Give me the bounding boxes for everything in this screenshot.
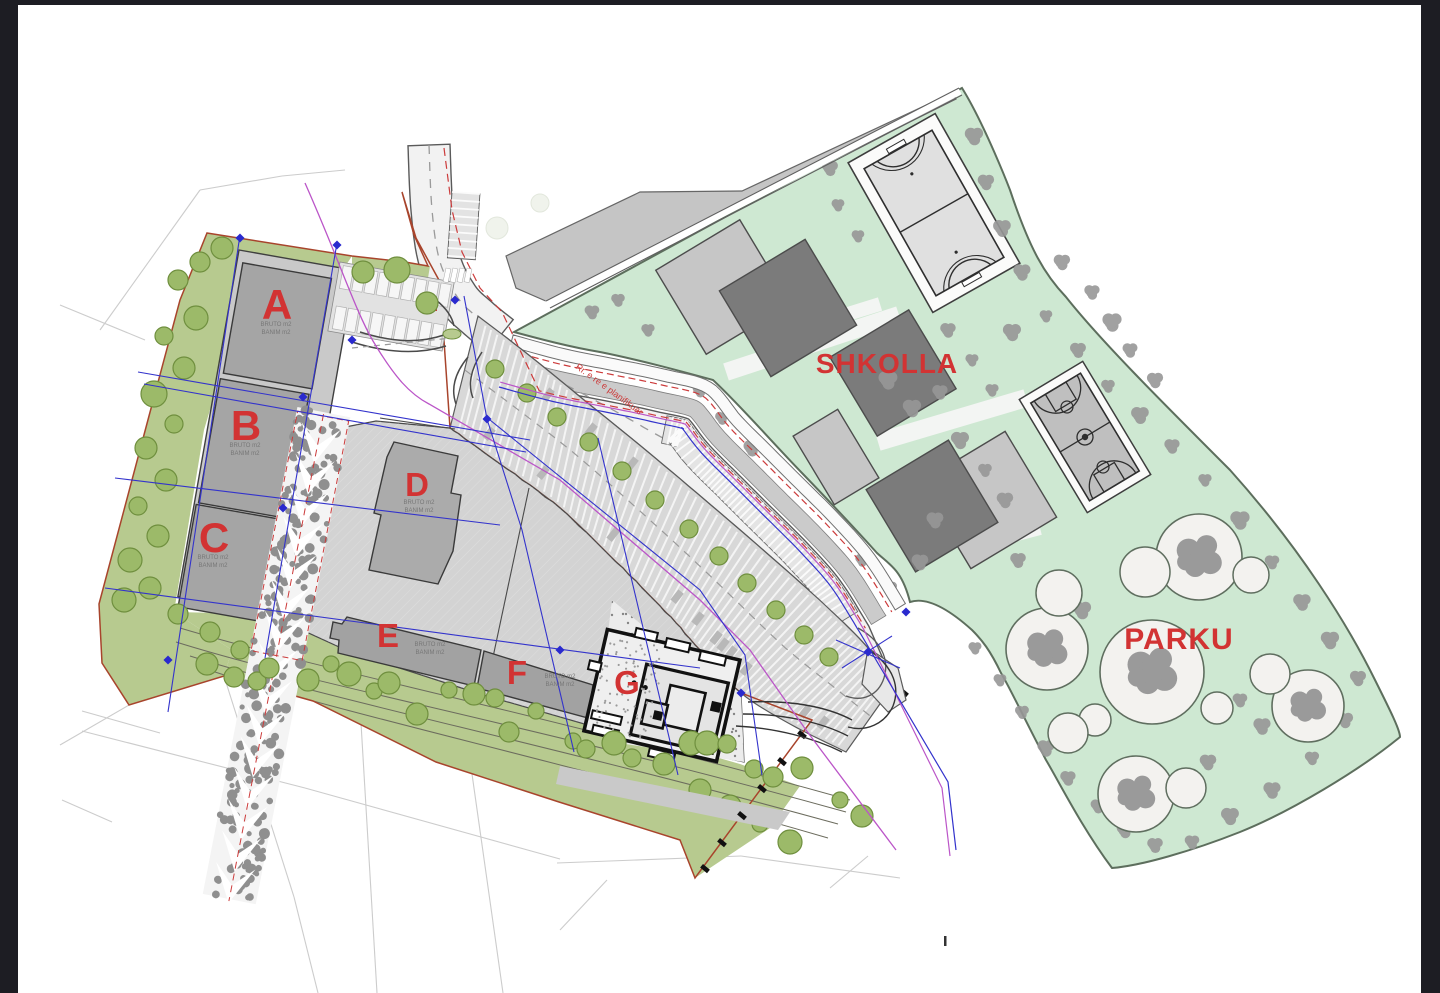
svg-text:F: F xyxy=(507,654,527,691)
svg-text:G: G xyxy=(614,664,640,701)
svg-text:E: E xyxy=(377,617,399,654)
svg-text:BRUTO m2: BRUTO m2 xyxy=(261,322,293,328)
svg-text:BANIM m2: BANIM m2 xyxy=(261,330,291,336)
svg-text:BRUTO m2: BRUTO m2 xyxy=(404,500,436,506)
svg-text:BANIM m2: BANIM m2 xyxy=(415,650,445,656)
svg-text:PARKU: PARKU xyxy=(1124,623,1233,656)
svg-text:SHKOLLA: SHKOLLA xyxy=(816,348,958,379)
svg-text:A: A xyxy=(262,281,292,328)
svg-text:BRUTO m2: BRUTO m2 xyxy=(198,555,230,561)
svg-text:D: D xyxy=(405,466,429,503)
svg-text:BANIM m2: BANIM m2 xyxy=(545,682,575,688)
svg-text:BRUTO m2: BRUTO m2 xyxy=(230,443,262,449)
svg-text:BRUTO m2: BRUTO m2 xyxy=(545,674,577,680)
svg-text:BANIM m2: BANIM m2 xyxy=(230,451,260,457)
svg-text:BANIM m2: BANIM m2 xyxy=(198,563,228,569)
svg-text:BRUTO m2: BRUTO m2 xyxy=(415,642,447,648)
svg-text:BANIM m2: BANIM m2 xyxy=(404,508,434,514)
svg-text:B: B xyxy=(231,402,261,449)
svg-text:C: C xyxy=(199,514,229,561)
